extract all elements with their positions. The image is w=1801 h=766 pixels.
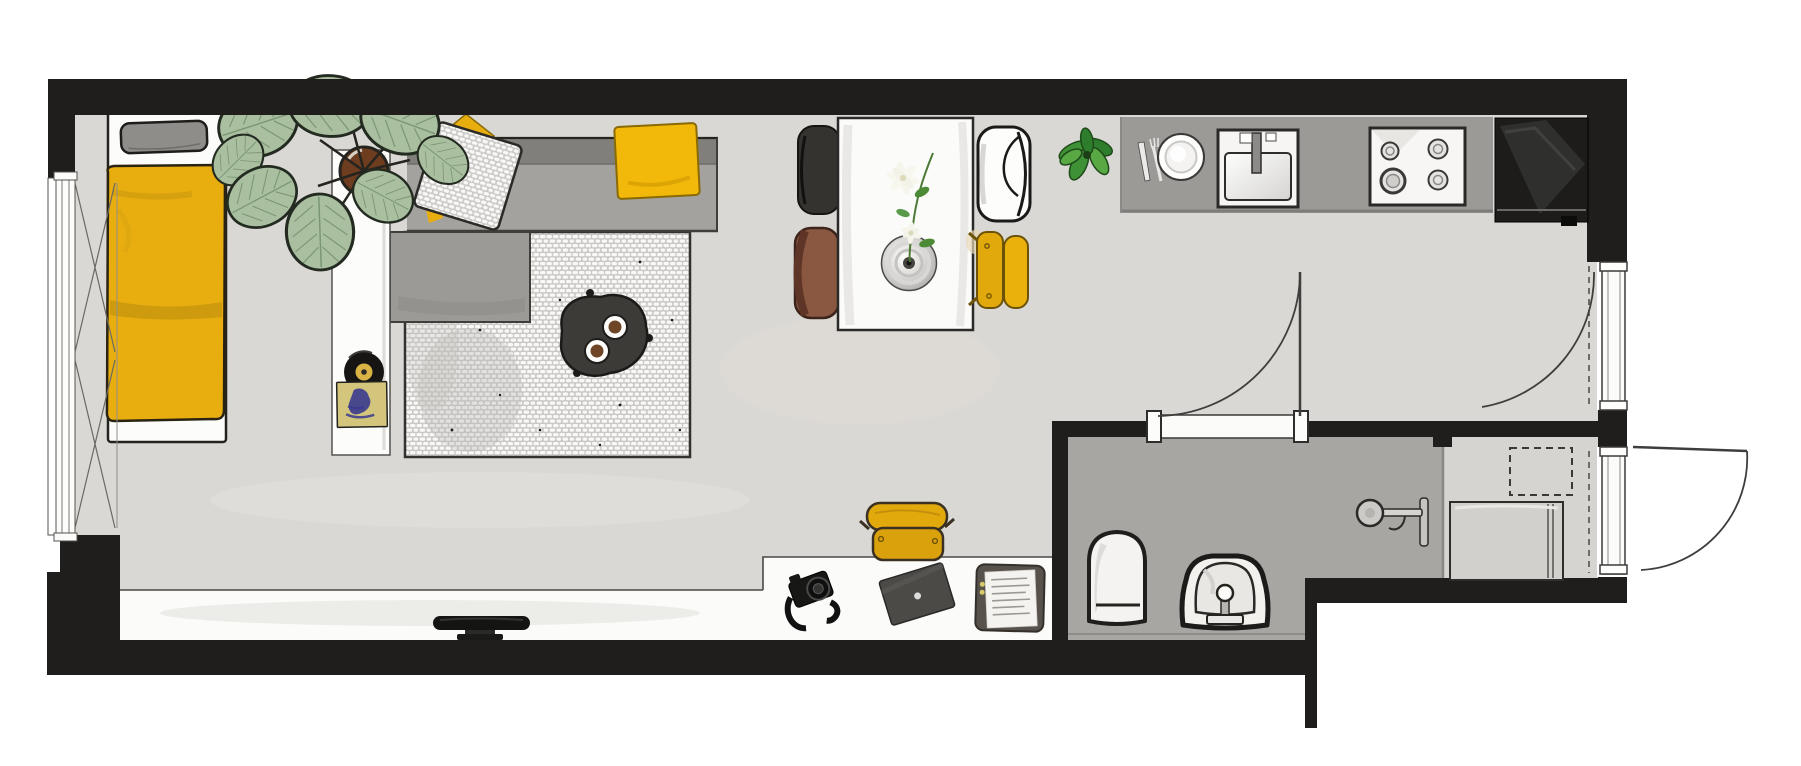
kitchen [1120, 117, 1588, 226]
fridge-icon [1495, 118, 1588, 226]
duvet-icon [107, 165, 225, 421]
pillow-icon [121, 121, 208, 154]
desk-chair-icon [860, 503, 954, 560]
wall-top [48, 79, 1627, 115]
stove-icon [1370, 128, 1465, 205]
door-threshold-icon [1150, 415, 1307, 438]
bathroom-wall-left [1052, 421, 1068, 640]
bed-icon [107, 110, 226, 442]
bench-wash [160, 600, 700, 626]
floor-wash [210, 472, 750, 528]
plate-icon [1158, 134, 1204, 180]
wall-left-upper [48, 79, 75, 180]
wall-right-upper [1587, 79, 1627, 262]
washing-machine-icon [1450, 502, 1563, 580]
clipboard-icon [975, 564, 1045, 632]
sink-icon [1218, 130, 1298, 207]
bathroom-wall-top-left [1052, 421, 1155, 437]
bathroom-wall-top-right [1300, 421, 1627, 437]
wall-right-lower [1598, 577, 1627, 603]
door-leaf [1633, 447, 1747, 451]
white-chair-icon [978, 127, 1030, 221]
yellow-cushion-icon [614, 123, 700, 199]
bath-sink-icon [1089, 532, 1145, 624]
wall-bottom-right [1305, 578, 1627, 603]
album-cover-icon [337, 382, 388, 428]
door-swing-icon [1641, 451, 1747, 570]
floor-plan [0, 0, 1801, 766]
floor-wash [720, 315, 1000, 425]
bathroom-wall-stub [1433, 421, 1452, 447]
toilet-icon [1182, 556, 1268, 628]
floor-plan-canvas [0, 0, 1801, 766]
wall-bottom [47, 640, 1317, 675]
outside-area [1317, 603, 1801, 766]
faucet-icon [1252, 133, 1261, 173]
dining-table-icon [838, 118, 973, 330]
entrance-door [1589, 447, 1747, 577]
